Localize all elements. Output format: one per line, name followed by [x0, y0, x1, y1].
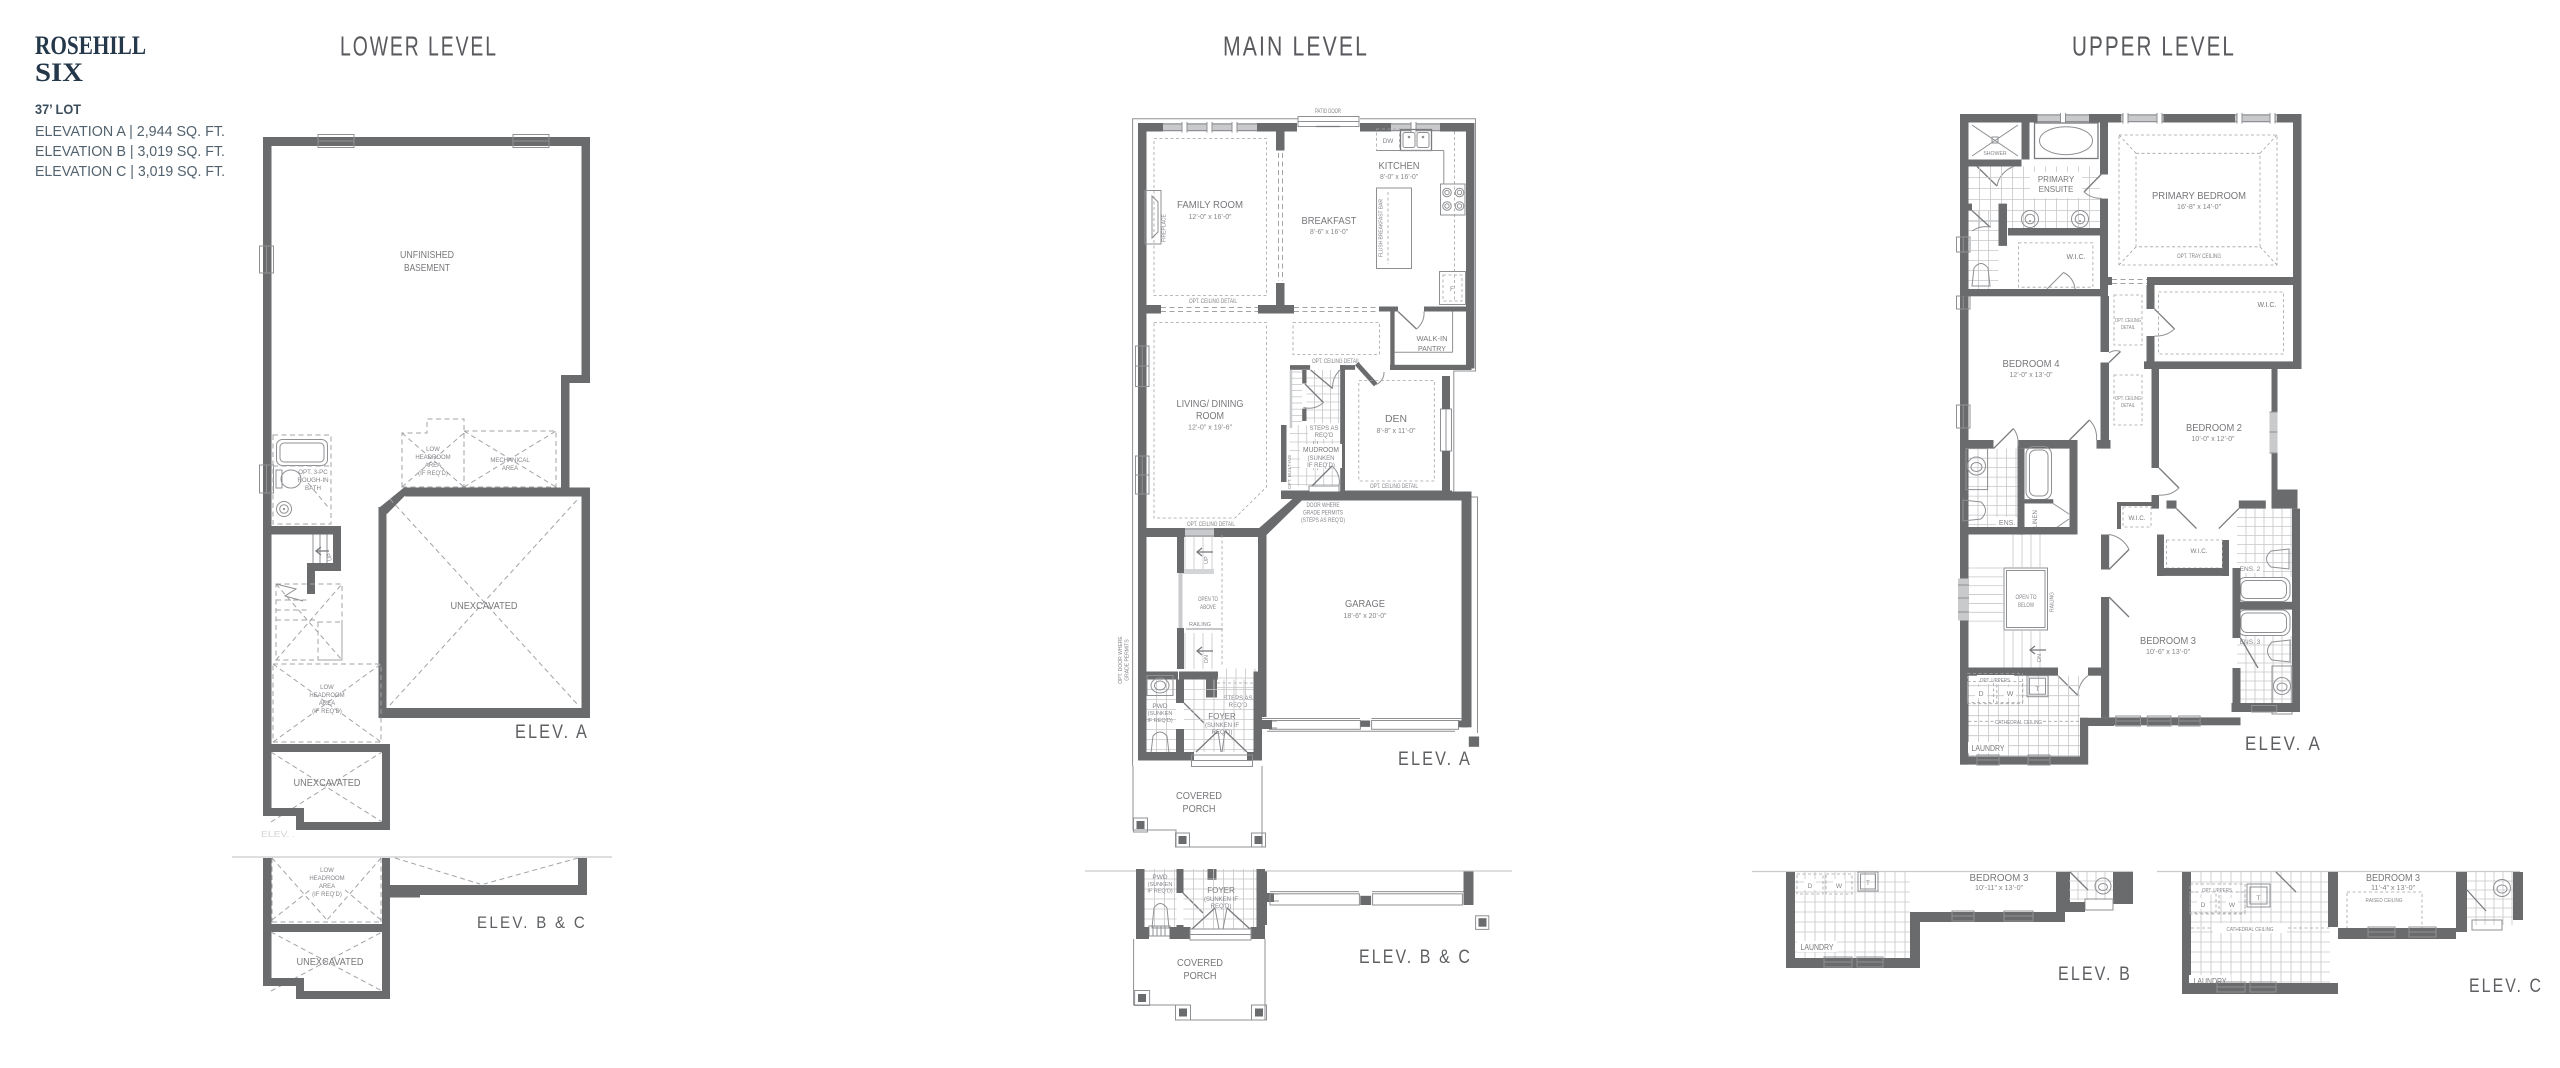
svg-text:OPEN TO: OPEN TO: [1198, 596, 1218, 603]
svg-text:ROOM: ROOM: [1196, 410, 1224, 422]
svg-text:UPPER LEVEL: UPPER LEVEL: [2072, 31, 2236, 62]
svg-text:REQ’D: REQ’D: [1315, 433, 1334, 439]
svg-text:DOOR WHERE: DOOR WHERE: [1307, 503, 1340, 509]
svg-text:W.I.C.: W.I.C.: [2191, 548, 2208, 555]
svg-text:8’-0” x 16’-0”: 8’-0” x 16’-0”: [1380, 172, 1418, 181]
svg-text:HEADROOM: HEADROOM: [309, 876, 344, 882]
svg-text:10’-11” x 13’-0”: 10’-11” x 13’-0”: [1975, 885, 2024, 892]
svg-text:PATIO DOOR: PATIO DOOR: [1315, 109, 1341, 115]
svg-text:11’-4” x 13’-0”: 11’-4” x 13’-0”: [2371, 885, 2416, 892]
svg-text:LAUNDRY: LAUNDRY: [1801, 943, 1835, 952]
svg-text:T: T: [2257, 895, 2261, 902]
svg-text:FOYER: FOYER: [1208, 712, 1236, 721]
svg-text:MECHANICAL: MECHANICAL: [490, 458, 530, 464]
svg-text:LOWER LEVEL: LOWER LEVEL: [340, 31, 498, 62]
svg-text:ELEV. A: ELEV. A: [1398, 749, 1472, 770]
svg-text:ELEVATION B | 3,019 SQ. FT.: ELEVATION B | 3,019 SQ. FT.: [35, 143, 225, 160]
svg-text:ABOVE: ABOVE: [1200, 604, 1216, 611]
svg-text:DN: DN: [2037, 654, 2043, 662]
svg-text:ELEV. A: ELEV. A: [515, 722, 589, 743]
svg-text:BEDROOM 3: BEDROOM 3: [2366, 873, 2420, 884]
svg-text:OPT. 3-PC: OPT. 3-PC: [298, 469, 328, 476]
svg-text:UNEXCAVATED: UNEXCAVATED: [297, 956, 364, 968]
svg-text:SHOWER: SHOWER: [1983, 151, 2007, 157]
svg-text:BREAKFAST: BREAKFAST: [1302, 215, 1358, 227]
svg-text:REQ’D: REQ’D: [1229, 703, 1248, 709]
svg-text:UP: UP: [1204, 556, 1210, 564]
svg-text:(IF REQ’D): (IF REQ’D): [312, 709, 342, 715]
svg-text:RAISED CEILING: RAISED CEILING: [2366, 898, 2403, 904]
svg-text:GRADE PERMITS: GRADE PERMITS: [1303, 511, 1343, 517]
svg-text:OPT. TRAY CEILING: OPT. TRAY CEILING: [2177, 254, 2221, 260]
svg-text:ENSUITE: ENSUITE: [2039, 185, 2074, 194]
svg-text:PWD: PWD: [1152, 703, 1167, 710]
svg-text:12’-0” x 19’-6”: 12’-0” x 19’-6”: [1188, 423, 1232, 432]
svg-text:37’ LOT: 37’ LOT: [35, 101, 81, 117]
svg-text:BELOW: BELOW: [2018, 603, 2034, 609]
svg-text:HEADROOM: HEADROOM: [309, 693, 344, 699]
svg-text:FLUSH BREAKFAST BAR: FLUSH BREAKFAST BAR: [1379, 199, 1385, 257]
svg-text:DEN: DEN: [1385, 413, 1407, 425]
svg-text:WALK-IN: WALK-IN: [1417, 334, 1448, 343]
svg-text:T: T: [1866, 881, 1870, 887]
svg-text:DETAIL: DETAIL: [2121, 403, 2135, 409]
svg-text:LOW: LOW: [426, 447, 440, 453]
svg-text:COVERED: COVERED: [1177, 958, 1223, 969]
svg-text:MUDROOM: MUDROOM: [1303, 445, 1339, 454]
svg-text:GRADE PERMITS: GRADE PERMITS: [1125, 639, 1131, 681]
svg-text:(SUNKEN IF: (SUNKEN IF: [1205, 723, 1239, 729]
svg-text:OPT. UPPERS: OPT. UPPERS: [1980, 678, 2010, 684]
svg-text:OPT. CEILING DETAIL: OPT. CEILING DETAIL: [1189, 299, 1238, 305]
svg-text:PANTRY: PANTRY: [1418, 344, 1446, 353]
svg-text:(SUNKEN IF: (SUNKEN IF: [1204, 897, 1238, 903]
svg-text:BEDROOM 2: BEDROOM 2: [2186, 422, 2242, 434]
svg-text:ELEV. A: ELEV. A: [2245, 734, 2322, 755]
svg-text:W.I.C.: W.I.C.: [2067, 252, 2086, 261]
svg-text:ENS. 2: ENS. 2: [2240, 566, 2261, 573]
svg-text:FIREPLACE: FIREPLACE: [1162, 213, 1168, 241]
svg-text:D: D: [1978, 691, 1983, 698]
svg-text:STEPS AS: STEPS AS: [1223, 696, 1252, 702]
svg-text:DN: DN: [1204, 655, 1210, 663]
svg-text:OPT. UPPERS: OPT. UPPERS: [2202, 888, 2232, 894]
svg-text:DETAIL: DETAIL: [2121, 325, 2135, 331]
svg-text:(SUNKEN: (SUNKEN: [1148, 882, 1173, 888]
svg-text:OPT. CEILING DETAIL: OPT. CEILING DETAIL: [1312, 359, 1361, 365]
svg-text:(STEPS AS REQ’D): (STEPS AS REQ’D): [1301, 518, 1345, 524]
svg-text:CATHEDRAL CEILING: CATHEDRAL CEILING: [1995, 720, 2042, 726]
svg-text:ROUGH-IN: ROUGH-IN: [297, 477, 328, 484]
svg-text:DW: DW: [1383, 138, 1395, 145]
svg-text:AREA: AREA: [319, 701, 335, 707]
svg-text:PRIMARY BEDROOM: PRIMARY BEDROOM: [2152, 190, 2246, 202]
svg-text:10’-6” x 13’-0”: 10’-6” x 13’-0”: [2146, 647, 2190, 656]
svg-text:D: D: [1808, 883, 1813, 890]
svg-text:FOYER: FOYER: [1207, 886, 1235, 895]
svg-text:MAIN LEVEL: MAIN LEVEL: [1223, 31, 1369, 62]
svg-text:(SUNKEN: (SUNKEN: [1307, 456, 1334, 462]
svg-text:W.I.C.: W.I.C.: [2129, 515, 2146, 522]
svg-text:OPT. CEILING DETAIL: OPT. CEILING DETAIL: [1370, 484, 1419, 490]
svg-text:ELEV. B & C: ELEV. B & C: [1359, 947, 1472, 968]
svg-text:ROSEHILL: ROSEHILL: [35, 31, 146, 60]
svg-text:8’-8” x 11’-0”: 8’-8” x 11’-0”: [1377, 426, 1416, 435]
svg-text:COVERED: COVERED: [1176, 791, 1222, 802]
svg-text:F: F: [1450, 286, 1454, 293]
svg-text:12’-0” x 16’-0”: 12’-0” x 16’-0”: [1189, 212, 1232, 221]
svg-text:OPEN TO: OPEN TO: [2016, 595, 2037, 601]
svg-text:IF REQ’D): IF REQ’D): [1147, 718, 1173, 724]
svg-text:RAILING: RAILING: [1189, 622, 1211, 628]
svg-text:ELEVATION C | 3,019 SQ. FT.: ELEVATION C | 3,019 SQ. FT.: [35, 163, 225, 180]
svg-text:BATH: BATH: [305, 485, 321, 492]
svg-text:GARAGE: GARAGE: [1345, 598, 1385, 610]
svg-text:STEPS AS: STEPS AS: [1309, 426, 1338, 432]
svg-text:UNEXCAVATED: UNEXCAVATED: [451, 600, 518, 612]
svg-text:RAILING: RAILING: [2050, 592, 2056, 612]
svg-text:ELEV. .: ELEV. .: [261, 829, 295, 839]
svg-text:AREA: AREA: [319, 884, 335, 890]
svg-text:AREA: AREA: [502, 466, 518, 472]
svg-text:LOW: LOW: [320, 868, 334, 874]
svg-text:D: D: [2201, 902, 2206, 909]
svg-text:OPT. BUILT-INS: OPT. BUILT-INS: [1287, 455, 1293, 489]
svg-text:W: W: [1836, 883, 1843, 890]
svg-text:OPT. CEILING DETAIL: OPT. CEILING DETAIL: [1187, 522, 1236, 528]
svg-text:(IF REQ’D): (IF REQ’D): [418, 471, 448, 477]
svg-text:FAMILY ROOM: FAMILY ROOM: [1177, 199, 1243, 211]
svg-text:(IF REQ’D): (IF REQ’D): [312, 892, 342, 898]
svg-text:OPT. DOOR WHERE: OPT. DOOR WHERE: [1118, 636, 1124, 684]
svg-text:LIVING/ DINING: LIVING/ DINING: [1177, 398, 1244, 410]
svg-text:UNEXCAVATED: UNEXCAVATED: [294, 777, 361, 789]
svg-text:IF REQ’D): IF REQ’D): [1147, 889, 1173, 895]
svg-text:LAUNDRY: LAUNDRY: [1972, 744, 2006, 753]
svg-text:BEDROOM 4: BEDROOM 4: [2003, 358, 2060, 370]
svg-text:ELEV. B & C: ELEV. B & C: [477, 914, 587, 932]
svg-text:LINEN: LINEN: [2033, 510, 2039, 528]
svg-text:PORCH: PORCH: [1184, 971, 1217, 982]
svg-text:OPT. CEILING: OPT. CEILING: [2115, 396, 2141, 402]
svg-text:OPT. CEILING: OPT. CEILING: [2115, 318, 2141, 324]
svg-text:SIX: SIX: [35, 58, 83, 87]
svg-text:10’-0” x 12’-0”: 10’-0” x 12’-0”: [2192, 434, 2235, 443]
svg-text:BEDROOM 3: BEDROOM 3: [2140, 635, 2196, 647]
svg-text:W: W: [2229, 902, 2236, 909]
svg-text:ELEVATION A | 2,944 SQ. FT.: ELEVATION A | 2,944 SQ. FT.: [35, 123, 225, 140]
svg-text:KITCHEN: KITCHEN: [1379, 160, 1420, 172]
svg-text:UP: UP: [328, 553, 334, 561]
svg-text:PORCH: PORCH: [1183, 804, 1216, 815]
svg-text:PWD: PWD: [1152, 874, 1167, 881]
svg-text:W.I.C.: W.I.C.: [2258, 300, 2277, 309]
svg-text:PRIMARY: PRIMARY: [2038, 175, 2075, 184]
svg-text:W: W: [2007, 691, 2014, 698]
svg-text:HEADROOM: HEADROOM: [415, 455, 450, 461]
svg-text:ELEV. C: ELEV. C: [2469, 976, 2543, 997]
svg-text:AREA: AREA: [425, 463, 441, 469]
svg-text:UNFINISHED: UNFINISHED: [400, 249, 454, 261]
svg-text:18’-6” x 20’-0”: 18’-6” x 20’-0”: [1344, 611, 1387, 620]
svg-text:LOW: LOW: [320, 685, 334, 691]
svg-text:BASEMENT: BASEMENT: [404, 262, 450, 274]
svg-text:BEDROOM 3: BEDROOM 3: [1970, 873, 2029, 884]
svg-text:16’-8” x 14’-0”: 16’-8” x 14’-0”: [2177, 202, 2221, 211]
svg-text:ELEV. B: ELEV. B: [2058, 964, 2132, 985]
svg-text:CATHEDRAL CEILING: CATHEDRAL CEILING: [2227, 927, 2274, 933]
svg-text:(SUNKEN: (SUNKEN: [1148, 711, 1173, 717]
svg-text:T: T: [2036, 686, 2040, 693]
svg-text:8’-6” x 16’-0”: 8’-6” x 16’-0”: [1310, 227, 1348, 236]
svg-text:12’-0” x 13’-0”: 12’-0” x 13’-0”: [2010, 370, 2053, 379]
